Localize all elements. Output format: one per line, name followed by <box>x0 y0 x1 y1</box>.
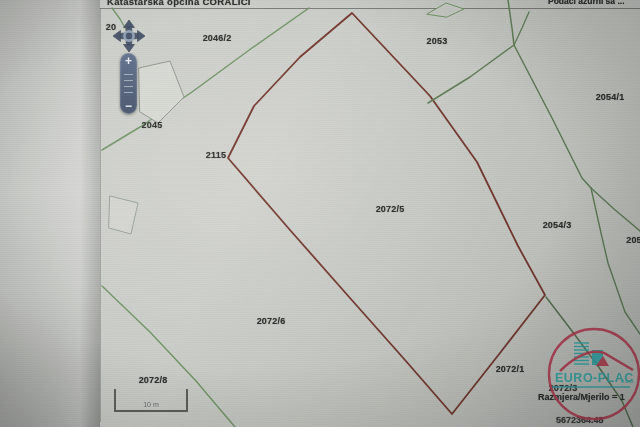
logo-suffix: d.o.o. <box>621 378 635 384</box>
cadastral-map-screenshot: Katastarska općina CORALICI Podaci ažurn… <box>0 0 640 427</box>
watermark-layer: EURO-PLAC d.o.o. <box>0 0 640 427</box>
europlac-logo: EURO-PLAC d.o.o. <box>549 329 639 419</box>
